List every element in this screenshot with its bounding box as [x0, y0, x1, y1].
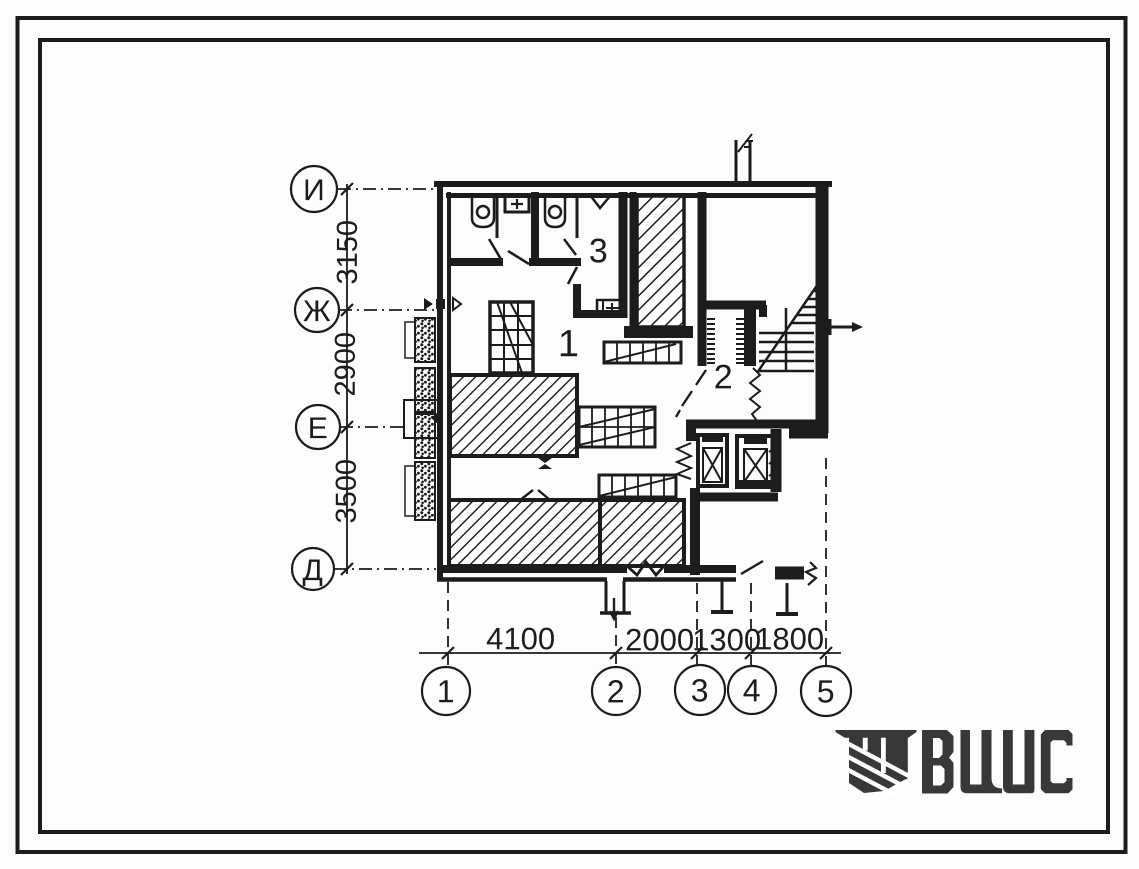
svg-text:Д: Д — [303, 554, 323, 587]
svg-text:Ж: Ж — [303, 295, 331, 328]
svg-text:2900: 2900 — [330, 332, 362, 397]
svg-text:1300: 1300 — [692, 622, 761, 657]
svg-text:И: И — [303, 174, 325, 207]
svg-text:1800: 1800 — [755, 621, 824, 656]
svg-text:3: 3 — [691, 672, 709, 708]
svg-text:4100: 4100 — [486, 621, 555, 656]
svg-text:Е: Е — [308, 412, 328, 445]
svg-text:2000: 2000 — [625, 622, 694, 657]
svg-text:4: 4 — [743, 672, 761, 708]
svg-text:2: 2 — [714, 358, 733, 396]
svg-text:2: 2 — [607, 673, 625, 709]
svg-text:1: 1 — [437, 673, 455, 709]
svg-text:3: 3 — [589, 232, 608, 270]
svg-text:3500: 3500 — [331, 459, 363, 524]
svg-text:5: 5 — [817, 673, 835, 709]
svg-text:1: 1 — [558, 323, 579, 365]
svg-text:3150: 3150 — [332, 220, 364, 285]
